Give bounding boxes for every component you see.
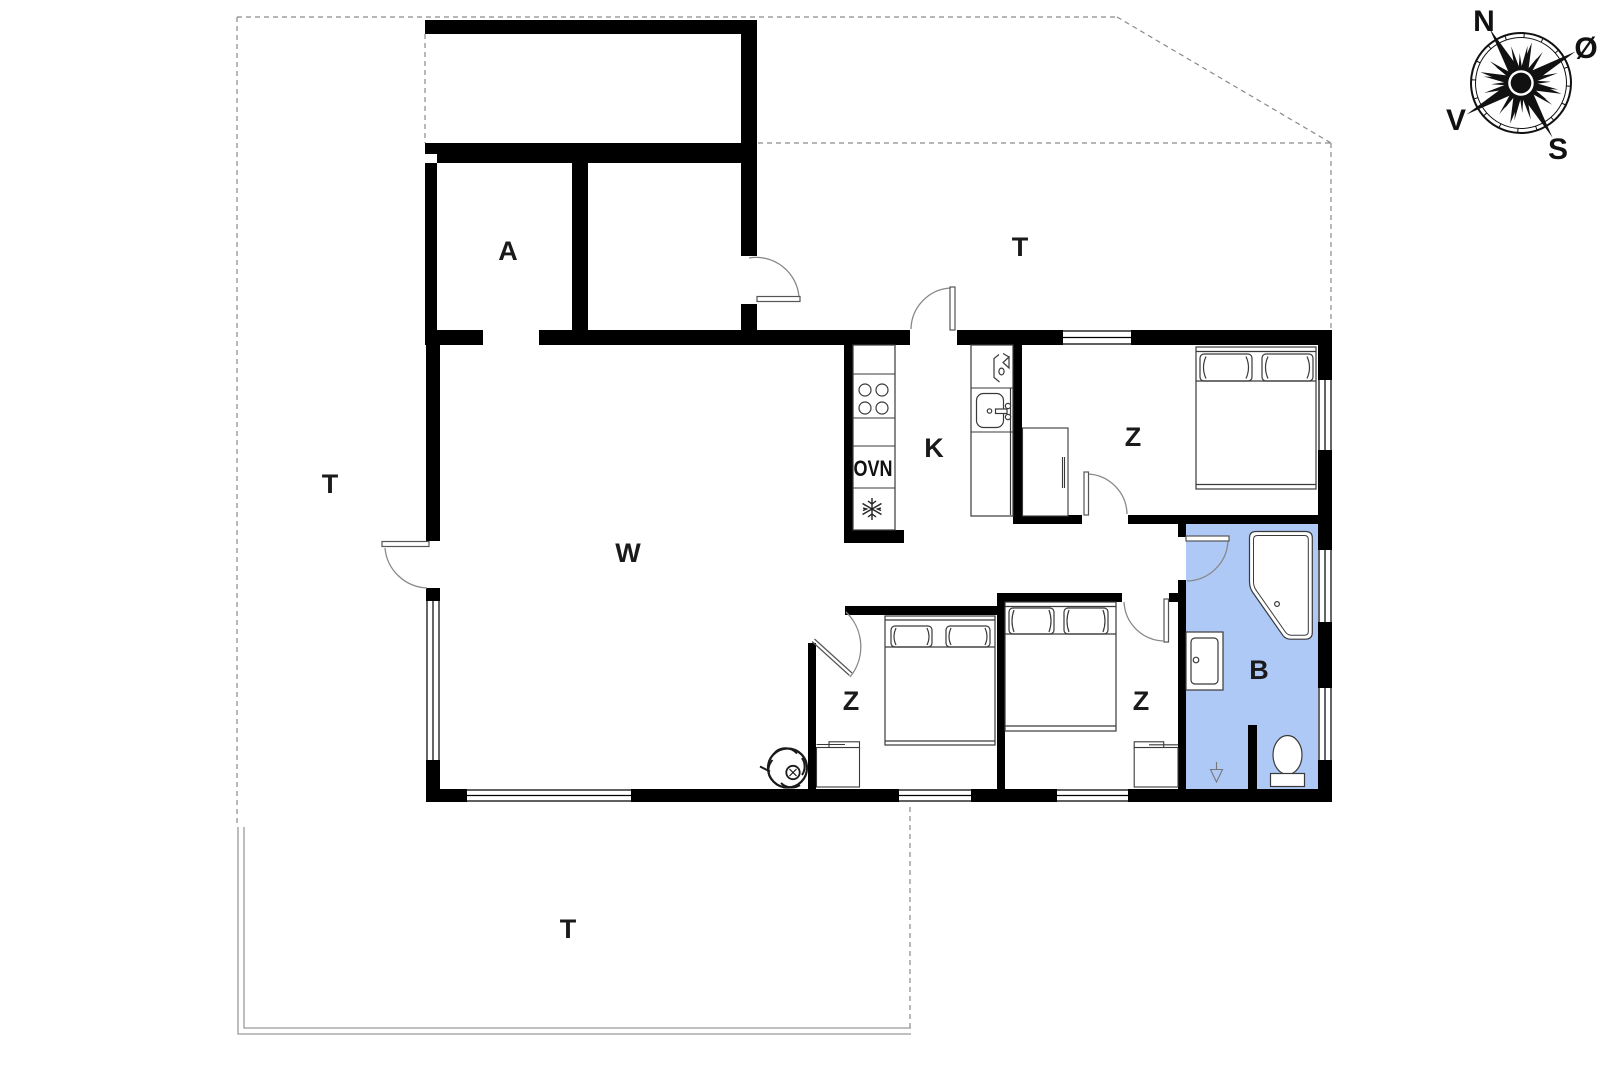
svg-text:S: S xyxy=(1548,133,1568,166)
svg-text:OVN: OVN xyxy=(854,456,893,481)
svg-text:V: V xyxy=(1446,104,1466,137)
svg-text:T: T xyxy=(1012,232,1029,262)
svg-text:Z: Z xyxy=(843,686,860,716)
svg-text:K: K xyxy=(924,433,944,463)
svg-text:T: T xyxy=(322,469,339,499)
svg-text:Z: Z xyxy=(1125,422,1142,452)
svg-text:Ø: Ø xyxy=(1574,32,1597,65)
svg-text:Z: Z xyxy=(1133,686,1150,716)
svg-text:N: N xyxy=(1473,5,1495,38)
svg-text:W: W xyxy=(615,538,641,568)
svg-text:A: A xyxy=(498,236,518,266)
svg-text:B: B xyxy=(1249,655,1269,685)
svg-text:T: T xyxy=(560,914,577,944)
